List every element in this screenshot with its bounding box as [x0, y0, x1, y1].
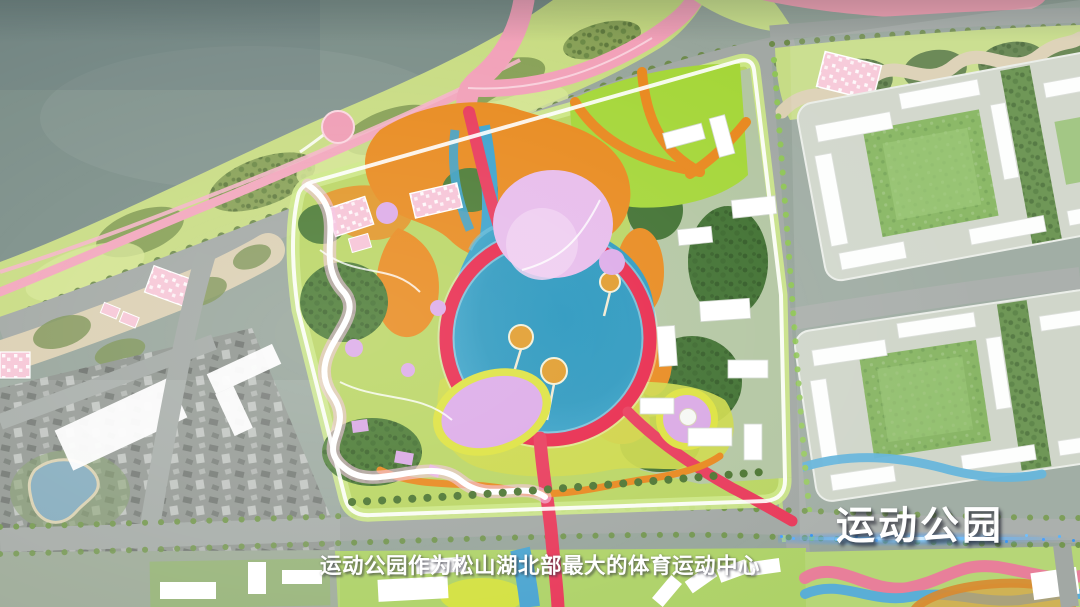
park-title: 运动公园	[836, 495, 1004, 551]
video-frame: 运动公园 运动公园作为松山湖北部最大的体育运动中心	[0, 0, 1080, 607]
caption-subtitle: 运动公园作为松山湖北部最大的体育运动中心	[320, 549, 760, 580]
